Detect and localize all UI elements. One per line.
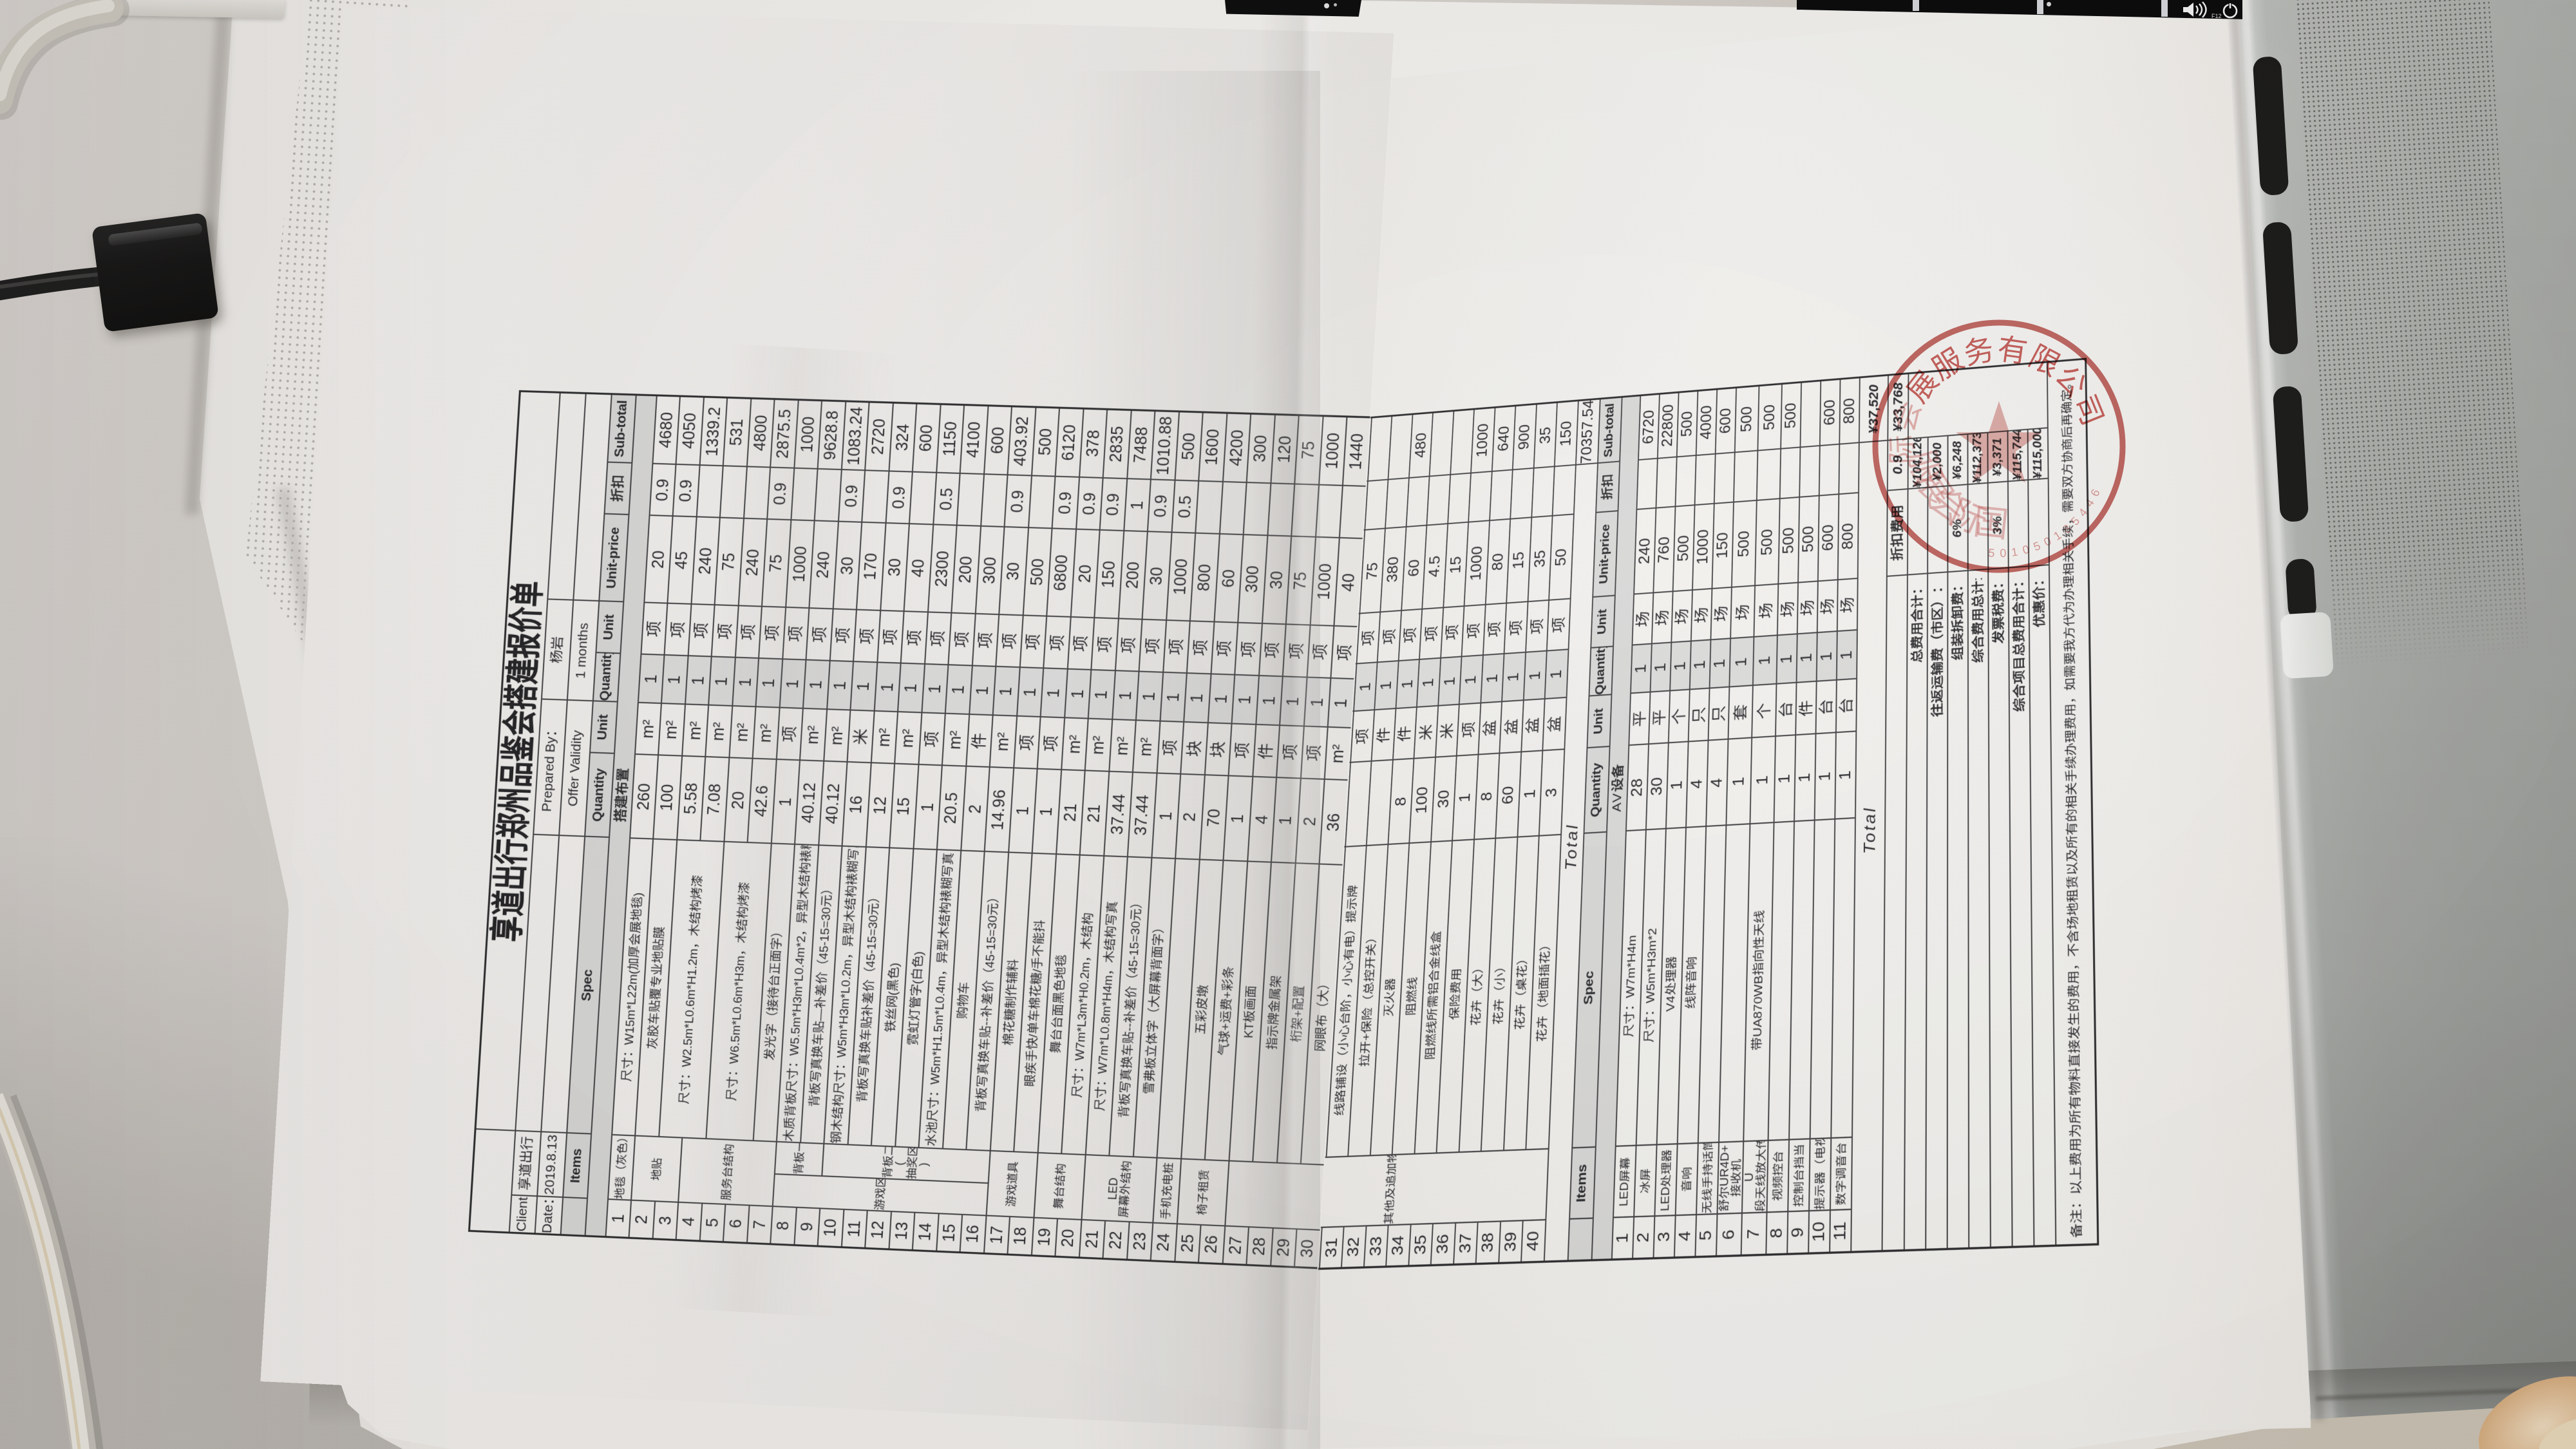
svg-text:8: 8	[2060, 522, 2073, 536]
svg-text:1: 1	[2011, 545, 2019, 559]
svg-text:4: 4	[2076, 506, 2090, 519]
svg-text:1: 1	[2051, 529, 2063, 543]
svg-text:0: 0	[2022, 543, 2031, 557]
svg-text:6: 6	[2088, 487, 2102, 498]
svg-text:5: 5	[1988, 546, 1995, 560]
svg-text:0: 0	[2000, 547, 2007, 560]
svg-text:4: 4	[2083, 497, 2097, 509]
svg-text:5: 5	[2069, 515, 2082, 528]
svg-text:0: 0	[2041, 535, 2053, 549]
svg-text:5: 5	[2032, 539, 2042, 553]
